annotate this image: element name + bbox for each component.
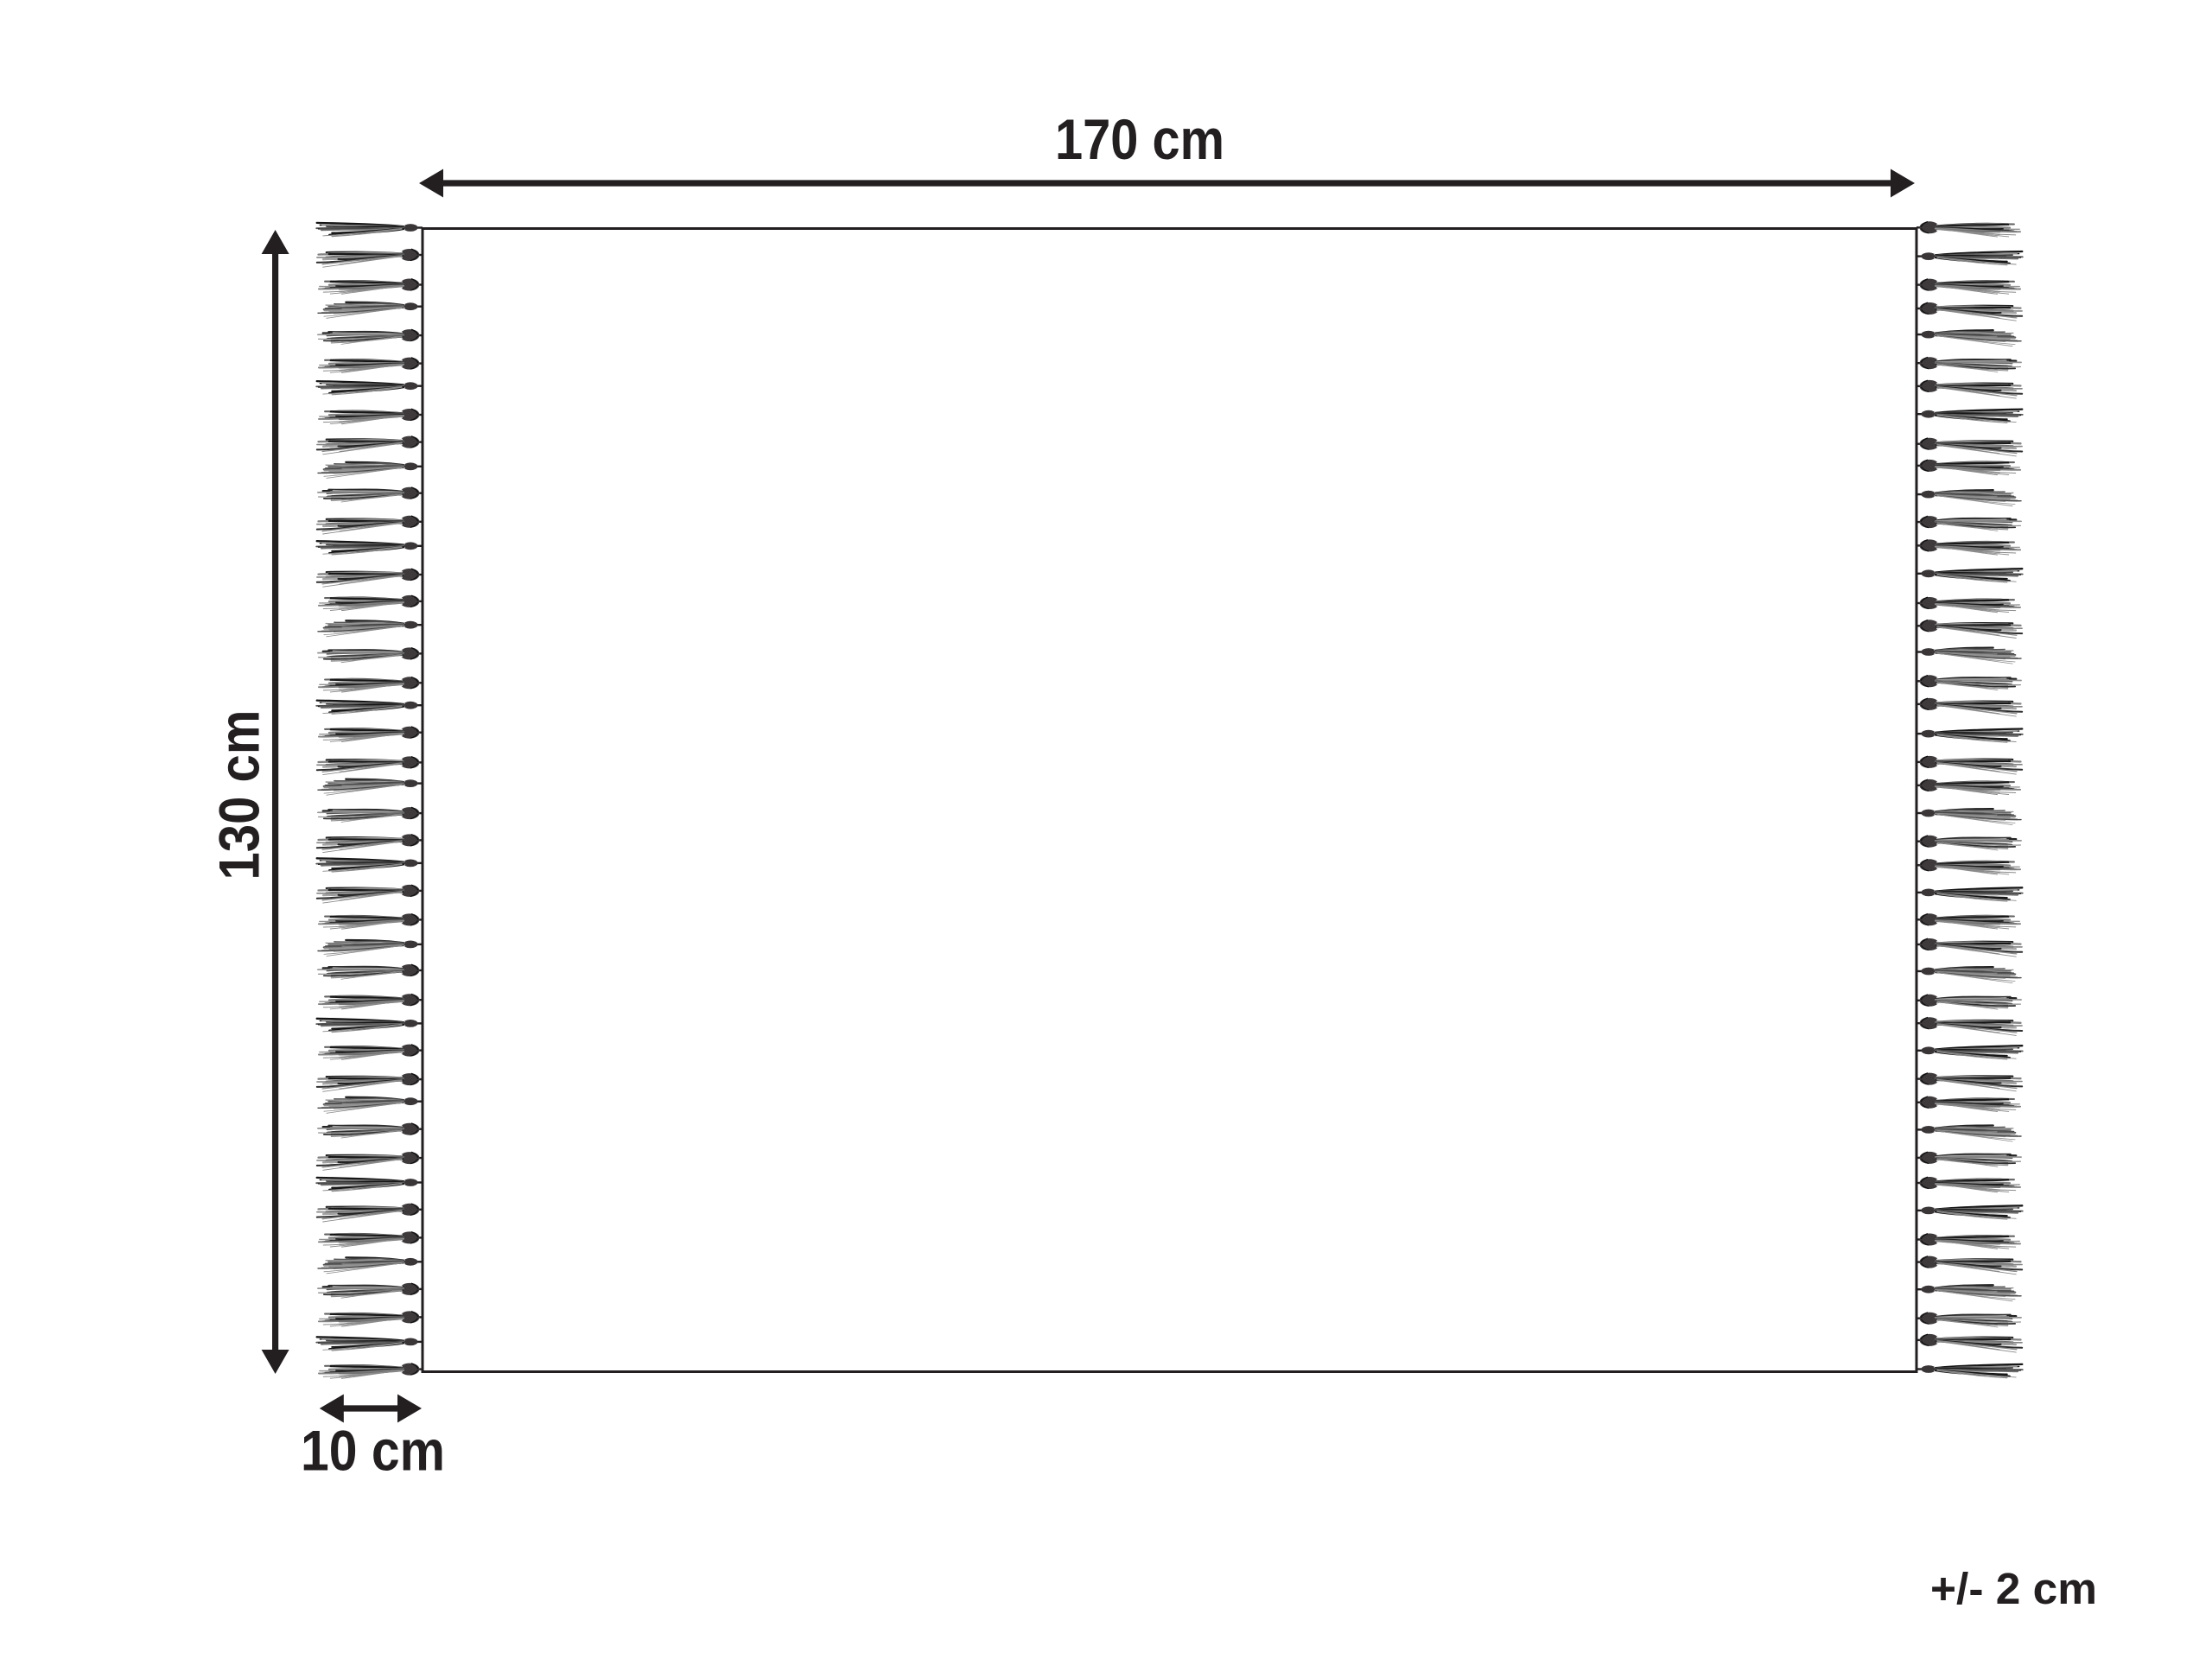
svg-text:+/- 2 cm: +/- 2 cm (1930, 1564, 2097, 1613)
svg-text:170 cm: 170 cm (1055, 107, 1224, 171)
svg-text:10 cm: 10 cm (301, 1419, 445, 1483)
svg-text:130 cm: 130 cm (207, 710, 270, 880)
